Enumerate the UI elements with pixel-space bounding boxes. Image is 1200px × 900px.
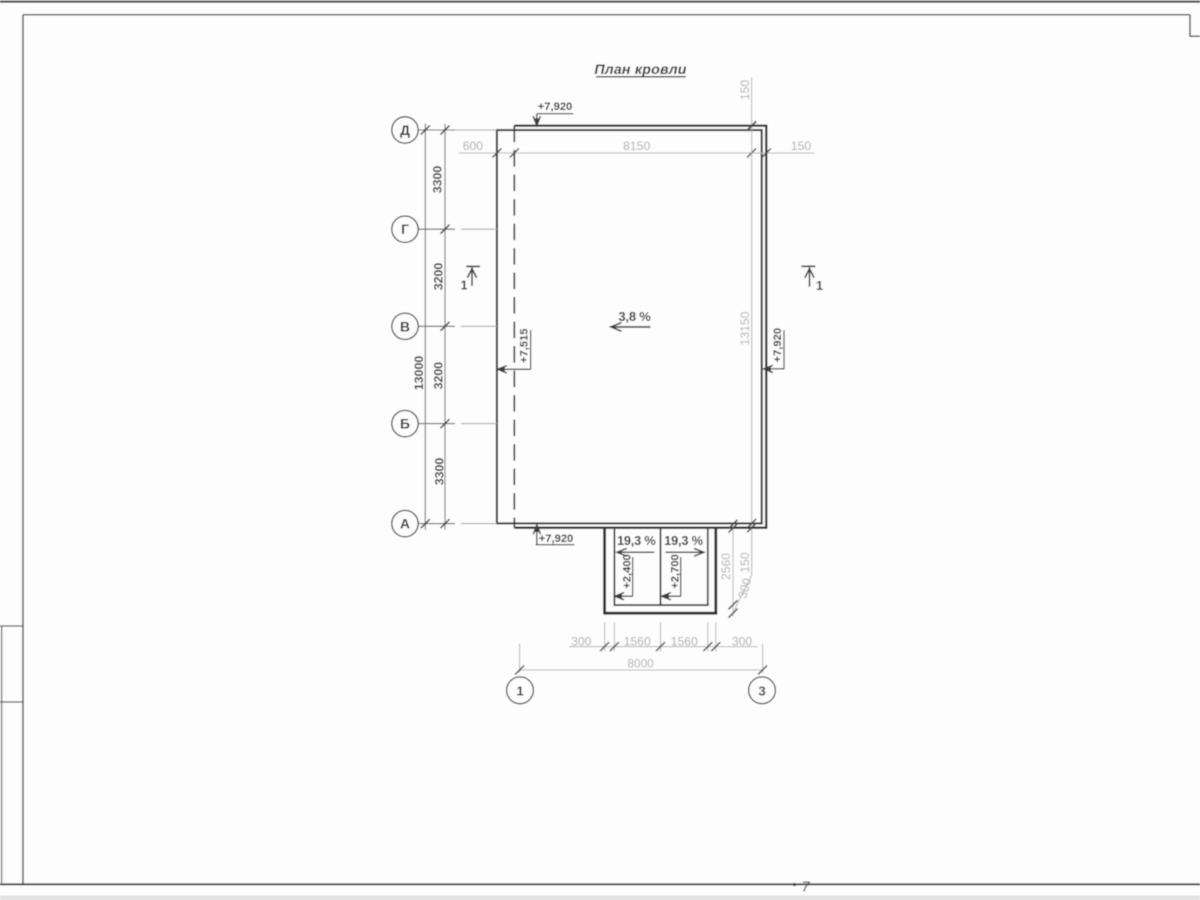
- svg-text:3300: 3300: [433, 458, 447, 486]
- svg-text:150: 150: [791, 139, 812, 153]
- svg-text:150: 150: [738, 80, 752, 101]
- svg-text:300: 300: [732, 634, 753, 648]
- svg-text:3200: 3200: [432, 263, 446, 291]
- svg-text:1560: 1560: [671, 634, 698, 648]
- svg-text:300: 300: [571, 634, 592, 648]
- svg-text:1: 1: [816, 279, 823, 293]
- svg-text:600: 600: [463, 139, 484, 153]
- svg-text:150: 150: [738, 552, 752, 573]
- svg-text:1: 1: [460, 279, 467, 293]
- svg-text:Г: Г: [401, 222, 409, 237]
- svg-text:1560: 1560: [624, 634, 651, 648]
- svg-text:3,8 %: 3,8 %: [618, 309, 651, 324]
- svg-text:+2,700: +2,700: [670, 554, 682, 589]
- svg-text:+2,400: +2,400: [621, 554, 633, 589]
- svg-text:2560: 2560: [719, 553, 733, 580]
- svg-text:А: А: [400, 517, 410, 532]
- svg-text:1: 1: [516, 683, 523, 698]
- svg-text:Б: Б: [400, 417, 410, 432]
- svg-text:7: 7: [801, 880, 810, 896]
- svg-text:В: В: [400, 319, 410, 334]
- svg-text:19,3 %: 19,3 %: [617, 533, 656, 548]
- svg-text:+7,920: +7,920: [538, 101, 573, 113]
- svg-text:13000: 13000: [412, 356, 426, 391]
- svg-text:3200: 3200: [432, 362, 446, 390]
- svg-text:19,3 %: 19,3 %: [664, 533, 703, 548]
- svg-text:13150: 13150: [738, 311, 752, 345]
- svg-text:План кровли: План кровли: [594, 62, 686, 78]
- svg-text:+7,920: +7,920: [772, 328, 784, 363]
- svg-text:8000: 8000: [627, 657, 654, 671]
- svg-text:+7,515: +7,515: [519, 329, 531, 364]
- svg-text:8150: 8150: [623, 139, 650, 153]
- svg-text:Д: Д: [400, 123, 410, 138]
- svg-text:3: 3: [758, 683, 765, 698]
- svg-text:3300: 3300: [431, 166, 445, 194]
- svg-text:+7,920: +7,920: [539, 533, 574, 545]
